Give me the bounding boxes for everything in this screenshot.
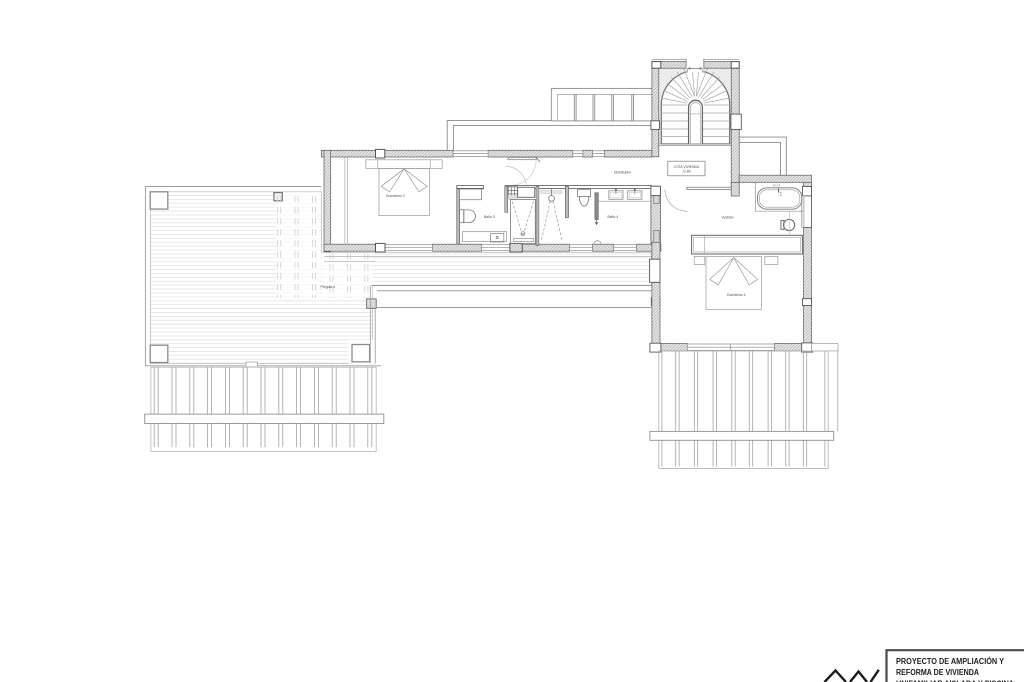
svg-text:Dormitorio 3: Dormitorio 3 (386, 194, 405, 198)
svg-text:COTA VIVIENDA: COTA VIVIENDA (674, 165, 700, 169)
svg-text:Dormitorio 4: Dormitorio 4 (727, 293, 746, 297)
svg-text:Vestidor: Vestidor (722, 216, 735, 220)
svg-text:REFORMA DE VIVIENDA: REFORMA DE VIVIENDA (896, 667, 979, 677)
svg-text:ascender: ascender (690, 112, 701, 116)
svg-text:PROYECTO DE AMPLIACIÓN Y: PROYECTO DE AMPLIACIÓN Y (896, 655, 1004, 666)
svg-text:Baño 4: Baño 4 (608, 215, 619, 219)
svg-text:+2.80: +2.80 (682, 170, 691, 174)
svg-text:Distribuidor: Distribuidor (614, 171, 632, 175)
svg-text:UNIFAMILIAR AISLADA Y PISCINA: UNIFAMILIAR AISLADA Y PISCINA (896, 678, 1014, 682)
svg-text:Pérgola 4: Pérgola 4 (321, 285, 336, 289)
svg-text:Baño 3: Baño 3 (484, 215, 495, 219)
svg-text:P.A 78: P.A 78 (773, 183, 781, 187)
